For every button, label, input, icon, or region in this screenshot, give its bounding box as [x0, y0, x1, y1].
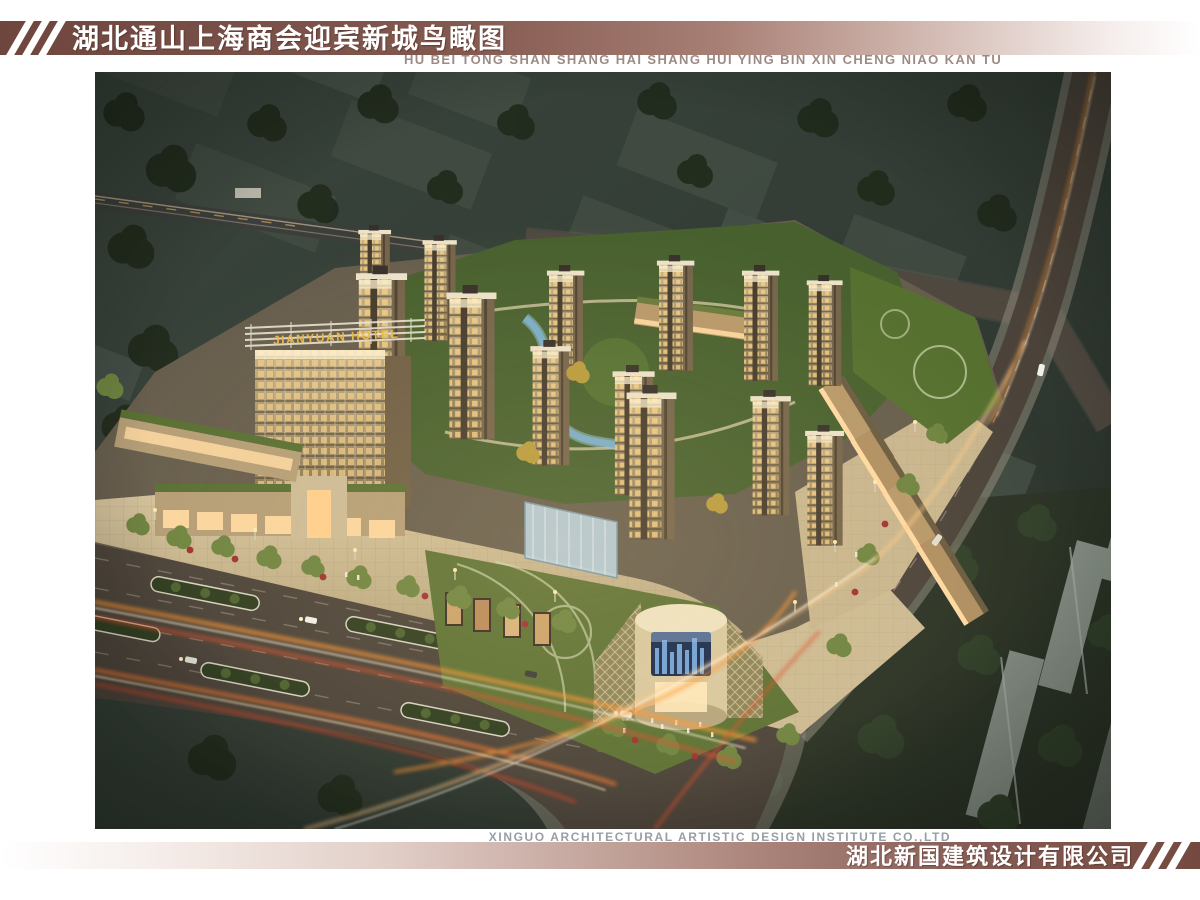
- company-name: 湖北新国建筑设计有限公司: [846, 843, 1134, 870]
- page-title: 湖北通山上海商会迎宾新城鸟瞰图: [72, 22, 507, 56]
- page-subtitle-pinyin: HU BEI TONG SHAN SHANG HAI SHANG HUI YIN…: [404, 52, 924, 67]
- presentation-board: { "header": { "title_cn": "湖北通山上海商会迎宾新城鸟…: [0, 0, 1200, 900]
- aerial-rendering-canvas: JIANYUAN HOTEL: [95, 72, 1111, 829]
- aerial-rendering: JIANYUAN HOTEL: [95, 72, 1111, 829]
